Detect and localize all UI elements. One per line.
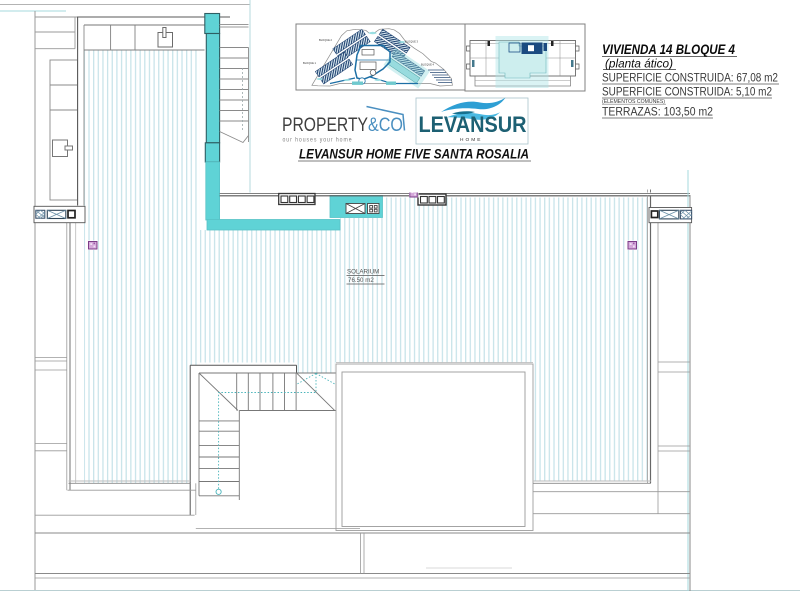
svg-text:SUPERFICIE CONSTRUIDA: 5,10 m2: SUPERFICIE CONSTRUIDA: 5,10 m2 xyxy=(602,86,772,99)
svg-text:(planta ático): (planta ático) xyxy=(605,57,673,71)
svg-text:BLOQUE 1: BLOQUE 1 xyxy=(303,61,317,65)
svg-text:LEVANSUR HOME FIVE SANTA ROSAL: LEVANSUR HOME FIVE SANTA ROSALIA xyxy=(299,147,529,162)
svg-text:our houses your home: our houses your home xyxy=(283,138,353,144)
svg-text:PROPERTY: PROPERTY xyxy=(282,115,368,136)
svg-text:SUPERFICIE CONSTRUIDA: 67,08 m: SUPERFICIE CONSTRUIDA: 67,08 m2 xyxy=(602,72,778,85)
svg-text:BLOQUE 3: BLOQUE 3 xyxy=(405,40,419,44)
svg-text:TERRAZAS: 103,50 m2: TERRAZAS: 103,50 m2 xyxy=(602,106,713,119)
svg-text:LEVANSUR: LEVANSUR xyxy=(419,112,527,137)
svg-text:SOLARIUM: SOLARIUM xyxy=(347,269,379,276)
svg-text:&CO: &CO xyxy=(368,115,403,136)
svg-text:HOME: HOME xyxy=(460,137,482,143)
svg-text:BLOQUE 2: BLOQUE 2 xyxy=(319,38,333,42)
svg-text:BLOQUE 4: BLOQUE 4 xyxy=(421,63,435,67)
svg-text:76.50 m2: 76.50 m2 xyxy=(348,277,374,284)
